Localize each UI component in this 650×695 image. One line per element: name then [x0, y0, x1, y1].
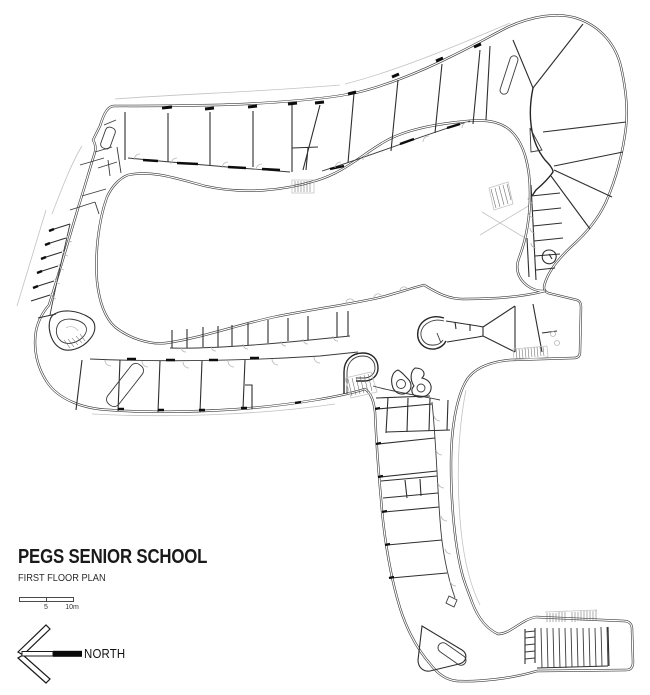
courtyard-band-rooms [170, 311, 350, 348]
scale-bar [19, 597, 74, 602]
sloped-room [104, 361, 146, 409]
scale-bar-divider [46, 598, 47, 601]
scale-bar-labels: 5 10m [19, 604, 89, 614]
junction-rooms [373, 368, 450, 433]
door-arcs [51, 122, 536, 586]
scale-end-label: 10m [65, 604, 79, 611]
scale-mid-label: 5 [44, 604, 48, 611]
floor-plan-drawing [0, 0, 650, 695]
southeast-wing-partitions [375, 396, 455, 598]
triangle-stair [49, 311, 95, 350]
stair-slot-northeast [499, 55, 519, 96]
seating-rows [541, 627, 608, 668]
drawing-sheet: PEGS SENIOR SCHOOL FIRST FLOOR PLAN 5 10… [0, 0, 650, 695]
stair-hatch-east [489, 182, 513, 210]
north-label: NORTH [84, 646, 125, 661]
drawing-title: PEGS SENIOR SCHOOL [18, 546, 207, 569]
north-arrow: NORTH [15, 621, 155, 685]
courtyard [96, 121, 545, 344]
bridge-and-wedge [418, 304, 560, 360]
stair-slot-west [100, 126, 117, 150]
title-block: PEGS SENIOR SCHOOL FIRST FLOOR PLAN [18, 546, 243, 584]
drawing-subtitle: FIRST FLOOR PLAN [18, 572, 216, 584]
